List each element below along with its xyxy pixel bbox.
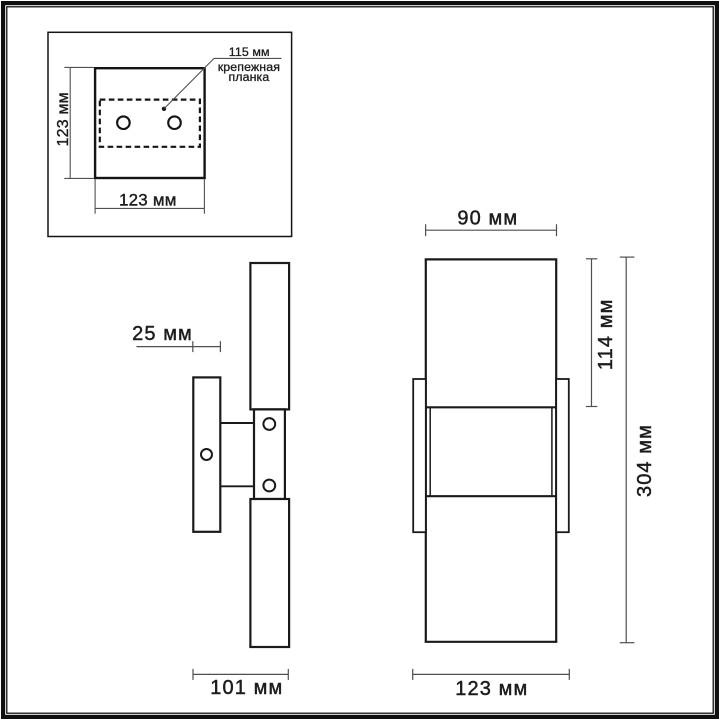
svg-text:123 мм: 123 мм bbox=[455, 678, 528, 700]
svg-text:101 мм: 101 мм bbox=[210, 677, 283, 699]
svg-text:304 мм: 304 мм bbox=[634, 424, 656, 497]
svg-text:123 мм: 123 мм bbox=[119, 191, 177, 210]
svg-text:90 мм: 90 мм bbox=[457, 207, 518, 229]
svg-text:25 мм: 25 мм bbox=[132, 323, 193, 345]
svg-text:115 мм: 115 мм bbox=[229, 45, 270, 59]
svg-text:123 мм: 123 мм bbox=[55, 92, 72, 146]
svg-text:планка: планка bbox=[228, 70, 269, 84]
svg-text:114 мм: 114 мм bbox=[595, 299, 617, 371]
